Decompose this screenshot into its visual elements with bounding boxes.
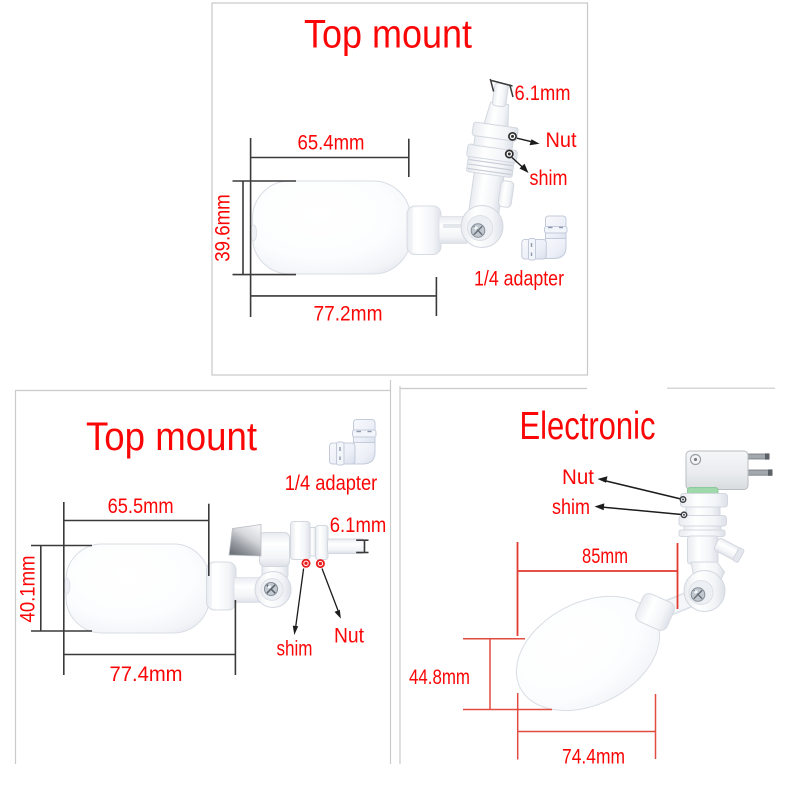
svg-text:Electronic: Electronic <box>520 405 656 448</box>
svg-text:Top mount: Top mount <box>86 415 257 459</box>
svg-text:shim: shim <box>277 638 313 661</box>
svg-text:77.4mm: 77.4mm <box>110 663 183 686</box>
svg-text:74.4mm: 74.4mm <box>562 746 625 769</box>
svg-text:65.5mm: 65.5mm <box>108 495 174 518</box>
svg-text:77.2mm: 77.2mm <box>314 303 383 326</box>
svg-text:Top mount: Top mount <box>304 13 472 57</box>
svg-text:44.8mm: 44.8mm <box>409 666 470 689</box>
svg-text:Nut: Nut <box>334 625 364 648</box>
svg-text:39.6mm: 39.6mm <box>212 194 235 262</box>
svg-text:65.4mm: 65.4mm <box>298 132 365 155</box>
svg-text:6.1mm: 6.1mm <box>515 82 571 105</box>
svg-text:85mm: 85mm <box>582 545 628 568</box>
svg-text:Nut: Nut <box>562 466 594 489</box>
svg-text:1/4 adapter: 1/4 adapter <box>285 472 378 495</box>
svg-text:40.1mm: 40.1mm <box>17 556 40 623</box>
svg-text:6.1mm: 6.1mm <box>330 514 387 537</box>
svg-text:shim: shim <box>552 496 590 519</box>
svg-text:1/4 adapter: 1/4 adapter <box>474 268 564 291</box>
svg-text:Nut: Nut <box>546 129 577 152</box>
svg-text:shim: shim <box>530 167 568 190</box>
